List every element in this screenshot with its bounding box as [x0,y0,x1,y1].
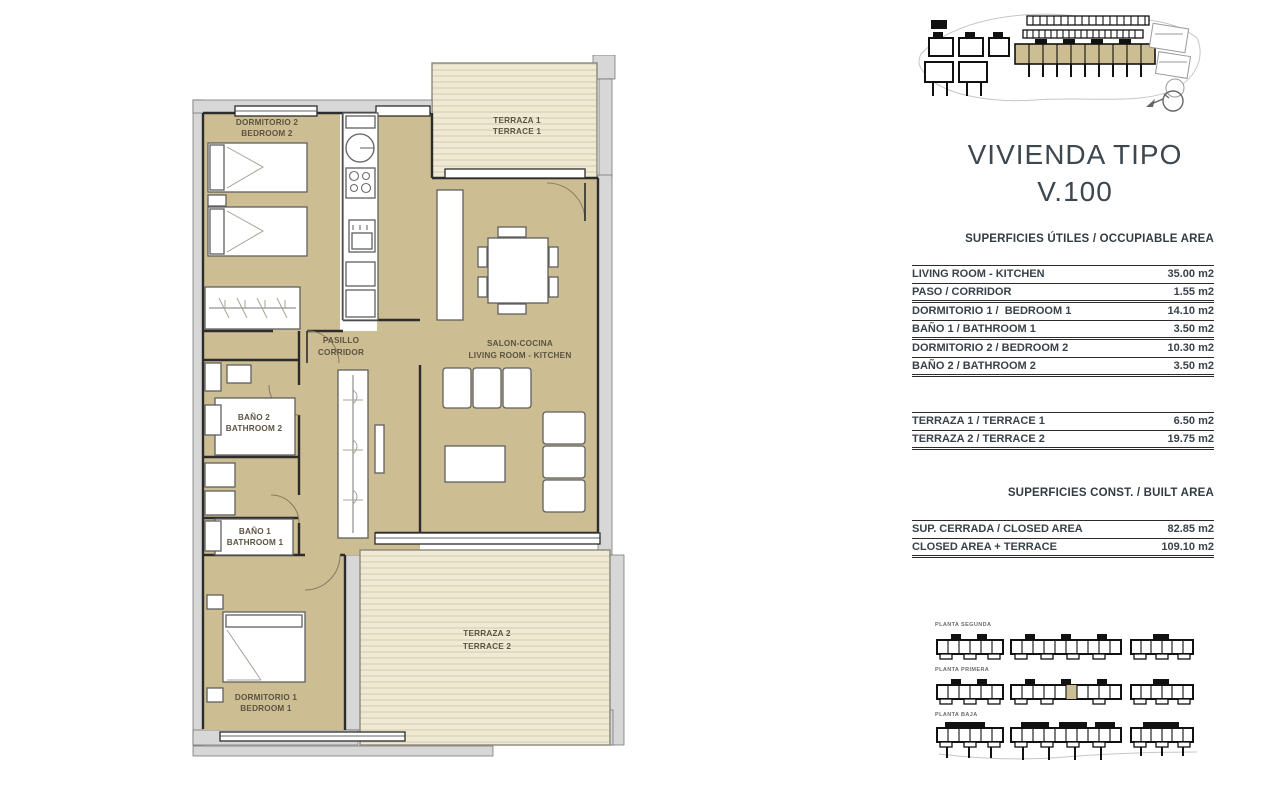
row-label: SUP. CERRADA / CLOSED AREA [912,523,1083,535]
row-label: BAÑO 1 / BATHROOM 1 [912,323,1036,335]
row-label: DORMITORIO 1 / BEDROOM 1 [912,305,1071,317]
bedroom1-label-es: DORMITORIO 1 [235,693,298,702]
table-row: LIVING ROOM - KITCHEN 35.00 m2 [912,266,1214,284]
unit-title-line2: V.100 [925,173,1225,210]
bedroom1-label-en: BEDROOM 1 [240,704,292,713]
table-row: TERRAZA 2 / TERRACE 2 19.75 m2 [912,431,1214,448]
occupiable-area-header: SUPERFICIES ÚTILES / OCCUPIABLE AREA [912,233,1214,245]
row-value: 6.50 m2 [1174,415,1214,427]
row-value: 3.50 m2 [1174,360,1214,372]
row-label: DORMITORIO 2 / BEDROOM 2 [912,342,1068,354]
row-label: CLOSED AREA + TERRACE [912,541,1057,553]
row-value: 109.10 m2 [1161,541,1214,553]
table-row: PASO / CORRIDOR 1.55 m2 [912,284,1214,301]
terrace2-label-en: TERRACE 2 [463,642,511,651]
built-area-header: SUPERFICIES CONST. / BUILT AREA [912,487,1214,499]
row-label: LIVING ROOM - KITCHEN [912,268,1045,280]
north-compass-icon [1146,86,1186,116]
kitchen-appliances [343,113,378,320]
table-row: BAÑO 1 / BATHROOM 1 3.50 m2 [912,321,1214,338]
floor-label-primera: PLANTA PRIMERA [935,667,1205,673]
table-row: DORMITORIO 2 / BEDROOM 2 10.30 m2 [912,340,1214,358]
row-value: 1.55 m2 [1174,286,1214,298]
row-value: 14.10 m2 [1168,305,1214,317]
floor-label-baja: PLANTA BAJA [935,712,1205,718]
table-row: BAÑO 2 / BATHROOM 2 3.50 m2 [912,358,1214,375]
floor-label-segunda: PLANTA SEGUNDA [935,622,1205,628]
unit-title: VIVIENDA TIPO V.100 [925,136,1225,210]
terraces-table: TERRAZA 1 / TERRACE 1 6.50 m2 TERRAZA 2 … [912,412,1214,450]
highlighted-unit [1066,685,1077,699]
living-label-en: LIVING ROOM - KITCHEN [469,351,572,360]
site-left-cluster [925,32,1009,96]
corridor-label-en: CORRIDOR [318,348,364,357]
bath1-label-es: BAÑO 1 [239,526,271,536]
floorplan-page: DORMITORIO 2 BEDROOM 2 TERRAZA 1 TERRACE… [0,0,1280,787]
site-middle-row [1015,16,1155,77]
row-value: 82.85 m2 [1168,523,1214,535]
terrace2-label-es: TERRAZA 2 [463,629,511,638]
row-label: PASO / CORRIDOR [912,286,1011,298]
bath2-label-es: BAÑO 2 [238,412,270,422]
occupiable-area-table: LIVING ROOM - KITCHEN 35.00 m2 PASO / CO… [912,265,1214,377]
planta-primera-row [935,675,1200,709]
bathroom1-fixtures [205,519,293,555]
row-label: TERRAZA 1 / TERRACE 1 [912,415,1045,427]
row-value: 19.75 m2 [1168,433,1214,445]
row-value: 3.50 m2 [1174,323,1214,335]
terrace1-label-es: TERRAZA 1 [493,116,541,125]
corridor-label-es: PASILLO [323,336,360,345]
bath2-label-en: BATHROOM 2 [226,424,283,433]
planta-segunda-row [935,630,1200,664]
built-area-table: SUP. CERRADA / CLOSED AREA 82.85 m2 CLOS… [912,520,1214,558]
table-row: TERRAZA 1 / TERRACE 1 6.50 m2 [912,413,1214,431]
table-row: SUP. CERRADA / CLOSED AREA 82.85 m2 [912,521,1214,539]
table-row: DORMITORIO 1 / BEDROOM 1 14.10 m2 [912,303,1214,321]
row-label: BAÑO 2 / BATHROOM 2 [912,360,1036,372]
unit-title-line1: VIVIENDA TIPO [925,136,1225,173]
apartment-floorplan-drawing: DORMITORIO 2 BEDROOM 2 TERRAZA 1 TERRACE… [185,55,645,765]
living-label-es: SALON-COCINA [487,339,553,348]
terrace1-label-en: TERRACE 1 [493,127,541,136]
row-label: TERRAZA 2 / TERRACE 2 [912,433,1045,445]
bedroom2-label-es: DORMITORIO 2 [236,118,299,127]
bath1-label-en: BATHROOM 1 [227,538,284,547]
table-row: CLOSED AREA + TERRACE 109.10 m2 [912,539,1214,556]
bedroom2-label-en: BEDROOM 2 [241,129,293,138]
row-value: 10.30 m2 [1168,342,1214,354]
planta-baja-row [935,720,1200,762]
bedroom2-furniture [205,143,307,329]
row-value: 35.00 m2 [1168,268,1214,280]
